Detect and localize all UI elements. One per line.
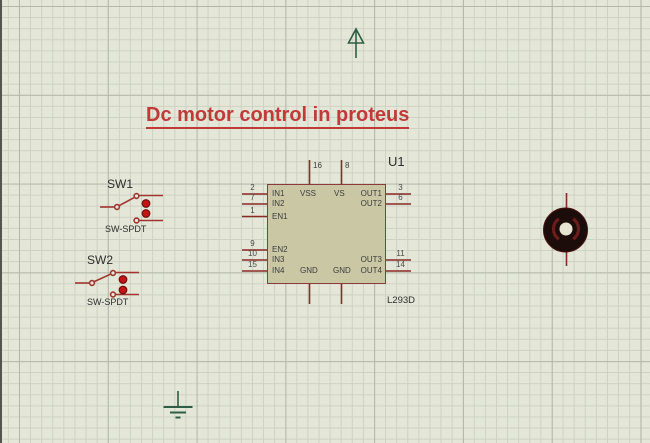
pin-name: IN3	[272, 256, 284, 264]
pin-name: IN4	[272, 267, 284, 275]
pin-number: 8	[345, 162, 349, 170]
ic-value-label: L293D	[387, 296, 415, 306]
pin-number: 7	[242, 194, 263, 202]
sw2-toggle-dot-up[interactable]	[119, 276, 127, 284]
pin-name: GND	[333, 267, 351, 275]
pin-number: 3	[390, 184, 411, 192]
pin-number: 11	[390, 250, 411, 258]
sw2-throw1-contact	[111, 271, 116, 276]
sw2-ref-label: SW2	[87, 254, 113, 266]
pin-number: 1	[242, 207, 263, 215]
switch-sw2[interactable]	[75, 271, 139, 297]
dc-motor[interactable]	[544, 193, 588, 266]
sw1-toggle-dot-up[interactable]	[142, 200, 150, 208]
pin-name: OUT3	[340, 256, 382, 264]
pin-number: 10	[242, 250, 263, 258]
pin-number: 9	[242, 240, 263, 248]
sw2-value-label: SW-SPDT	[87, 298, 128, 307]
pin-name: OUT1	[340, 190, 382, 198]
schematic-canvas[interactable]: Dc motor control in proteus	[0, 0, 650, 443]
motor-shaft-hole	[560, 223, 573, 236]
sw1-toggle-dot-down[interactable]	[142, 210, 150, 218]
sw1-value-label: SW-SPDT	[105, 225, 146, 234]
sw2-pole-contact	[90, 281, 95, 286]
pin-number: 6	[390, 194, 411, 202]
sw1-pole-contact	[115, 205, 120, 210]
switch-sw1[interactable]	[100, 194, 163, 223]
pin-number: 16	[313, 162, 322, 170]
sw1-throw2-contact	[134, 218, 139, 223]
ic-ref-label: U1	[388, 155, 405, 168]
power-terminal[interactable]	[349, 29, 364, 58]
pin-name: VSS	[300, 190, 316, 198]
pin-name: EN1	[272, 213, 288, 221]
ground-terminal[interactable]	[164, 391, 193, 418]
pin-name: GND	[300, 267, 318, 275]
pin-number: 2	[242, 184, 263, 192]
sw2-toggle-dot-down[interactable]	[119, 286, 127, 294]
pin-name: VS	[334, 190, 345, 198]
sw1-ref-label: SW1	[107, 178, 133, 190]
sw1-lever	[119, 198, 134, 206]
sw2-lever	[94, 274, 110, 281]
pin-name: IN1	[272, 190, 284, 198]
pin-number: 14	[390, 261, 411, 269]
pin-number: 15	[242, 261, 263, 269]
pin-name: EN2	[272, 246, 288, 254]
sw1-throw1-contact	[134, 194, 139, 199]
pin-name: IN2	[272, 200, 284, 208]
pin-name: OUT2	[340, 200, 382, 208]
